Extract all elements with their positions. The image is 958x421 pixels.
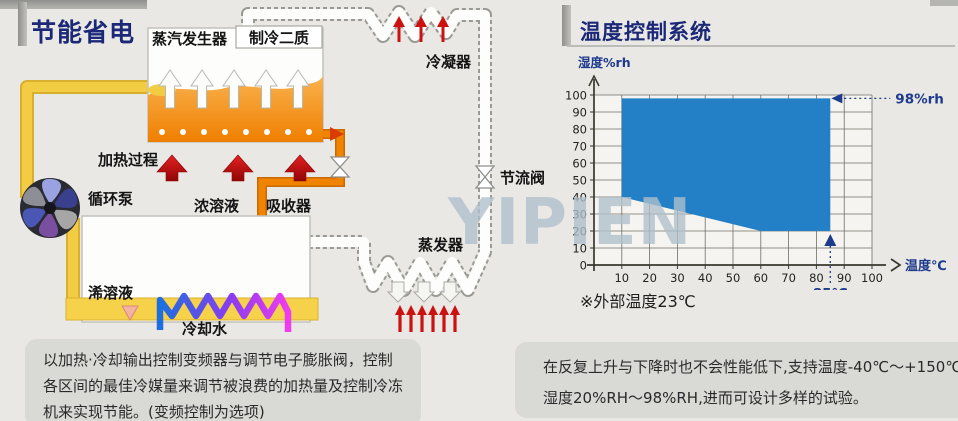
x-axis-title: 温度℃ xyxy=(905,258,947,274)
right-header-side-bar xyxy=(562,5,571,46)
label-evaporator: 蒸发器 xyxy=(418,236,464,254)
right-header-underline xyxy=(567,45,955,47)
x-tick-label: 10 xyxy=(614,271,629,285)
x-tick-label: 60 xyxy=(753,271,768,285)
y-tick-label: 20 xyxy=(572,225,587,239)
left-description-box: 以加热·冷却输出控制变频器与调节电子膨胀阀，控制 各区间的最佳冷媒量来调节被浪费… xyxy=(25,339,421,421)
y-tick-label: 60 xyxy=(572,157,587,171)
bottom-heat-arrows xyxy=(395,305,460,332)
label-concentrated-solution: 浓溶液 xyxy=(194,197,240,215)
y-tick-label: 100 xyxy=(565,89,587,103)
y-tick-label: 30 xyxy=(572,208,587,222)
label-heating-process: 加热过程 xyxy=(97,151,158,169)
y-tick-label: 0 xyxy=(580,259,587,273)
absorber-tank xyxy=(66,216,318,332)
right-description-box: 在反复上升与下降时也不会性能低下,支持温度-40℃～+150℃ 湿度20%RH～… xyxy=(515,342,958,418)
solution-valve-icon xyxy=(331,157,349,177)
label-throttle-valve: 节流阀 xyxy=(500,169,545,187)
x-tick-label: 100 xyxy=(861,271,883,285)
label-condenser: 冷凝器 xyxy=(426,53,472,71)
label-absorber: 吸收器 xyxy=(266,197,312,215)
left-description-line: 各区间的最佳冷媒量来调节被浪费的加热量及控制冷冻 xyxy=(43,373,421,399)
x-tick-label: 20 xyxy=(642,271,657,285)
y-axis-title: 湿度%rh xyxy=(578,55,631,70)
x-axis-arrow xyxy=(891,259,900,271)
evaporator-down-arrows xyxy=(388,282,460,302)
label-cooling-water: 冷却水 xyxy=(182,320,228,338)
right-panel-title: 温度控制系统 xyxy=(580,16,712,46)
label-refrigerant: 制冷二质 xyxy=(249,29,309,47)
label-dilute-solution: 浠溶液 xyxy=(88,284,134,302)
x-tick-label: 70 xyxy=(781,271,796,285)
x-tick-label: 30 xyxy=(670,271,685,285)
y-tick-label: 90 xyxy=(572,106,587,120)
refrigeration-cycle-diagram: 蒸汽发生器 制冷二质 冷凝器 加热过程 循环泵 浓溶液 吸收器 节流阀 蒸发器 … xyxy=(0,0,558,340)
y-tick-label: 70 xyxy=(572,140,587,154)
x-tick-label: 90 xyxy=(837,271,852,285)
label-steam-generator: 蒸汽发生器 xyxy=(152,30,228,48)
right-description-line: 在反复上升与下降时也不会性能低下,支持温度-40℃～+150℃ xyxy=(543,352,958,383)
x-tick-label: 40 xyxy=(698,271,713,285)
humidity-temperature-chart: 1020304050607080901000102030405060708090… xyxy=(565,55,958,290)
y-tick-label: 50 xyxy=(572,174,587,188)
left-description-line: 机来实现节能。(变频控制为选项) xyxy=(43,399,421,421)
annotation-label: 85℃ xyxy=(813,286,848,290)
annotation-label: 98%rh xyxy=(895,91,944,107)
right-description-line: 湿度20%RH～98%RH,进而可设计多样的试验。 xyxy=(543,383,958,414)
x-tick-label: 50 xyxy=(726,271,741,285)
chart-note: ※外部温度23℃ xyxy=(580,288,696,312)
x-tick-label: 80 xyxy=(809,271,824,285)
page: 节能省电 温度控制系统 xyxy=(0,0,958,421)
left-description-line: 以加热·冷却输出控制变频器与调节电子膨胀阀，控制 xyxy=(43,347,421,373)
label-circulation-pump: 循环泵 xyxy=(88,190,133,208)
y-tick-label: 10 xyxy=(572,242,587,256)
y-tick-label: 80 xyxy=(572,123,587,137)
y-tick-label: 40 xyxy=(572,191,587,205)
top-right-decoration xyxy=(930,0,958,6)
